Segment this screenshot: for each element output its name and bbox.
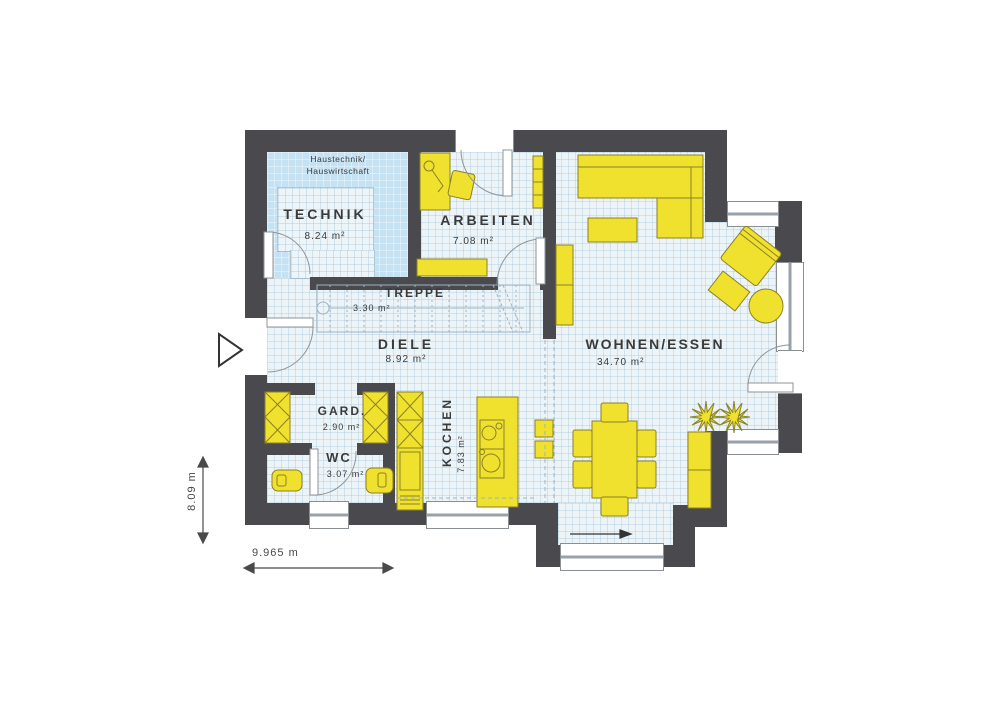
door-leaf <box>748 383 793 392</box>
door-swing-arc <box>268 327 313 372</box>
room-label-treppe: TREPPE <box>350 286 480 300</box>
room-label-gard: GARD. <box>312 404 372 418</box>
dimension-height-label: 8.09 m <box>186 461 198 521</box>
desk-chair <box>448 170 476 200</box>
wardrobe <box>265 392 290 443</box>
dimension-arrowhead <box>198 533 208 543</box>
floor-plan: Haustechnik/ Hauswirtschaft TECHNIK 8.24… <box>0 0 1000 707</box>
dining-chair <box>637 461 656 488</box>
door-leaf <box>310 449 318 495</box>
door-swing-arc <box>748 345 790 387</box>
desk <box>420 153 450 210</box>
dining-chair <box>601 497 628 516</box>
room-label-kochen: KOCHEN <box>440 387 454 477</box>
plan-symbols <box>0 0 1000 707</box>
room-area-wohnen-essen: 34.70 m² <box>597 357 677 368</box>
room-label-technik: TECHNIK <box>270 206 380 222</box>
entrance-arrow-icon <box>219 334 242 366</box>
dimension-width-label: 9.965 m <box>252 547 352 559</box>
room-area-kochen: 7.83 m² <box>456 426 466 482</box>
room-area-treppe: 3.30 m² <box>353 303 423 313</box>
sideboard <box>417 259 487 276</box>
kitchen-counter <box>477 397 518 507</box>
dining-chair <box>601 403 628 422</box>
room-area-gard: 2.90 m² <box>314 422 369 432</box>
room-area-arbeiten: 7.08 m² <box>430 236 569 247</box>
dining-chair <box>573 461 592 488</box>
technik-note-line2: Hauswirtschaft <box>279 165 397 177</box>
stool <box>535 441 553 458</box>
fridge-door <box>400 452 420 490</box>
dimension-arrowhead <box>198 457 208 467</box>
door-leaf <box>503 150 512 196</box>
technik-note-line1: Haustechnik/ <box>279 153 397 165</box>
room-area-diele: 8.92 m² <box>366 354 446 365</box>
stairs-start-circle <box>317 302 329 314</box>
side-table <box>749 289 783 323</box>
door-leaf <box>267 318 313 327</box>
room-label-diele: DIELE <box>356 336 456 352</box>
plant-icon <box>690 401 722 433</box>
desk-lamp-icon <box>424 161 434 171</box>
dimension-arrowhead <box>383 563 393 573</box>
technik-note: Haustechnik/ Hauswirtschaft <box>279 153 397 177</box>
room-area-technik: 8.24 m² <box>270 231 380 242</box>
stool <box>535 420 553 437</box>
room-label-wohnen-essen: WOHNEN/ESSEN <box>575 336 735 352</box>
room-area-wc: 3.07 m² <box>318 469 373 479</box>
dimension-arrowhead <box>244 563 254 573</box>
dining-chair <box>637 430 656 457</box>
dining-chair <box>573 430 592 457</box>
room-label-arbeiten: ARBEITEN <box>430 212 546 228</box>
sliding-door-arrowhead <box>620 530 631 538</box>
coffee-table <box>588 218 637 242</box>
dining-table <box>592 421 637 498</box>
plant-icon <box>718 401 750 433</box>
room-label-wc: WC <box>318 450 360 465</box>
